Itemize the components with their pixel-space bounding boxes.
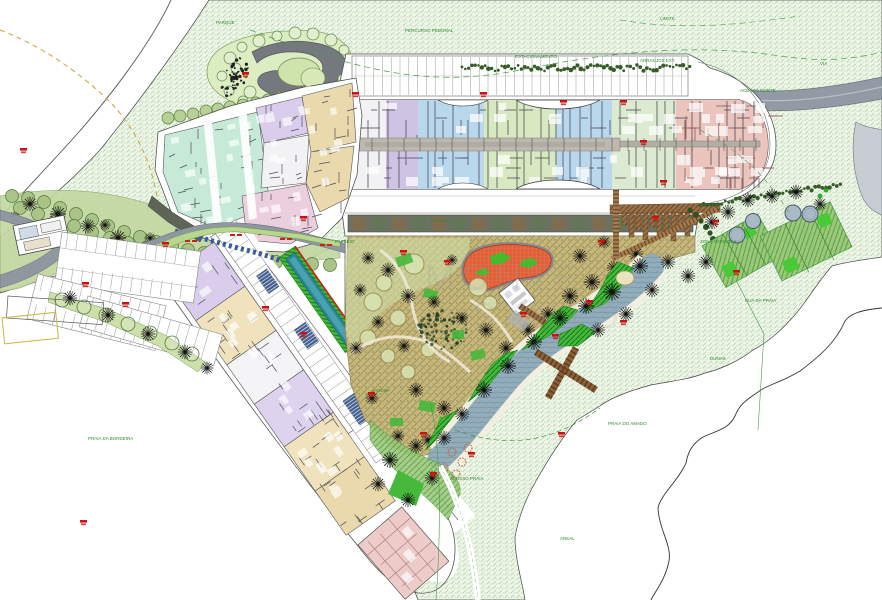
svg-text:LIMITE: LIMITE — [660, 16, 675, 21]
svg-text:RUA DA PRAIA: RUA DA PRAIA — [745, 298, 776, 303]
svg-text:MONTE: MONTE — [425, 257, 585, 298]
svg-text:DUNAS: DUNAS — [710, 356, 726, 361]
svg-text:PERCURSO PEDONAL: PERCURSO PEDONAL — [405, 28, 454, 33]
svg-text:ARRANJOS EXT.: ARRANJOS EXT. — [640, 58, 675, 63]
svg-text:PRAIA DA BORDEIRA: PRAIA DA BORDEIRA — [88, 436, 133, 441]
svg-text:ESTACIONAMENTO: ESTACIONAMENTO — [515, 54, 557, 59]
svg-text:VIA: VIA — [820, 61, 827, 66]
svg-text:ZONA AGRICOLA: ZONA AGRICOLA — [700, 239, 737, 244]
svg-text:SANTO: SANTO — [472, 295, 625, 336]
svg-text:AREAL: AREAL — [560, 536, 575, 541]
svg-text:ACESSO PRAIA: ACESSO PRAIA — [450, 476, 484, 481]
svg-text:PRAIA DO AMADO: PRAIA DO AMADO — [608, 421, 647, 426]
svg-text:PARQUE: PARQUE — [216, 20, 235, 25]
svg-text:PASSEIO: PASSEIO — [335, 239, 355, 244]
svg-text:ACESSO NORTE: ACESSO NORTE — [740, 88, 776, 93]
svg-text:PISCINAS: PISCINAS — [430, 218, 451, 223]
